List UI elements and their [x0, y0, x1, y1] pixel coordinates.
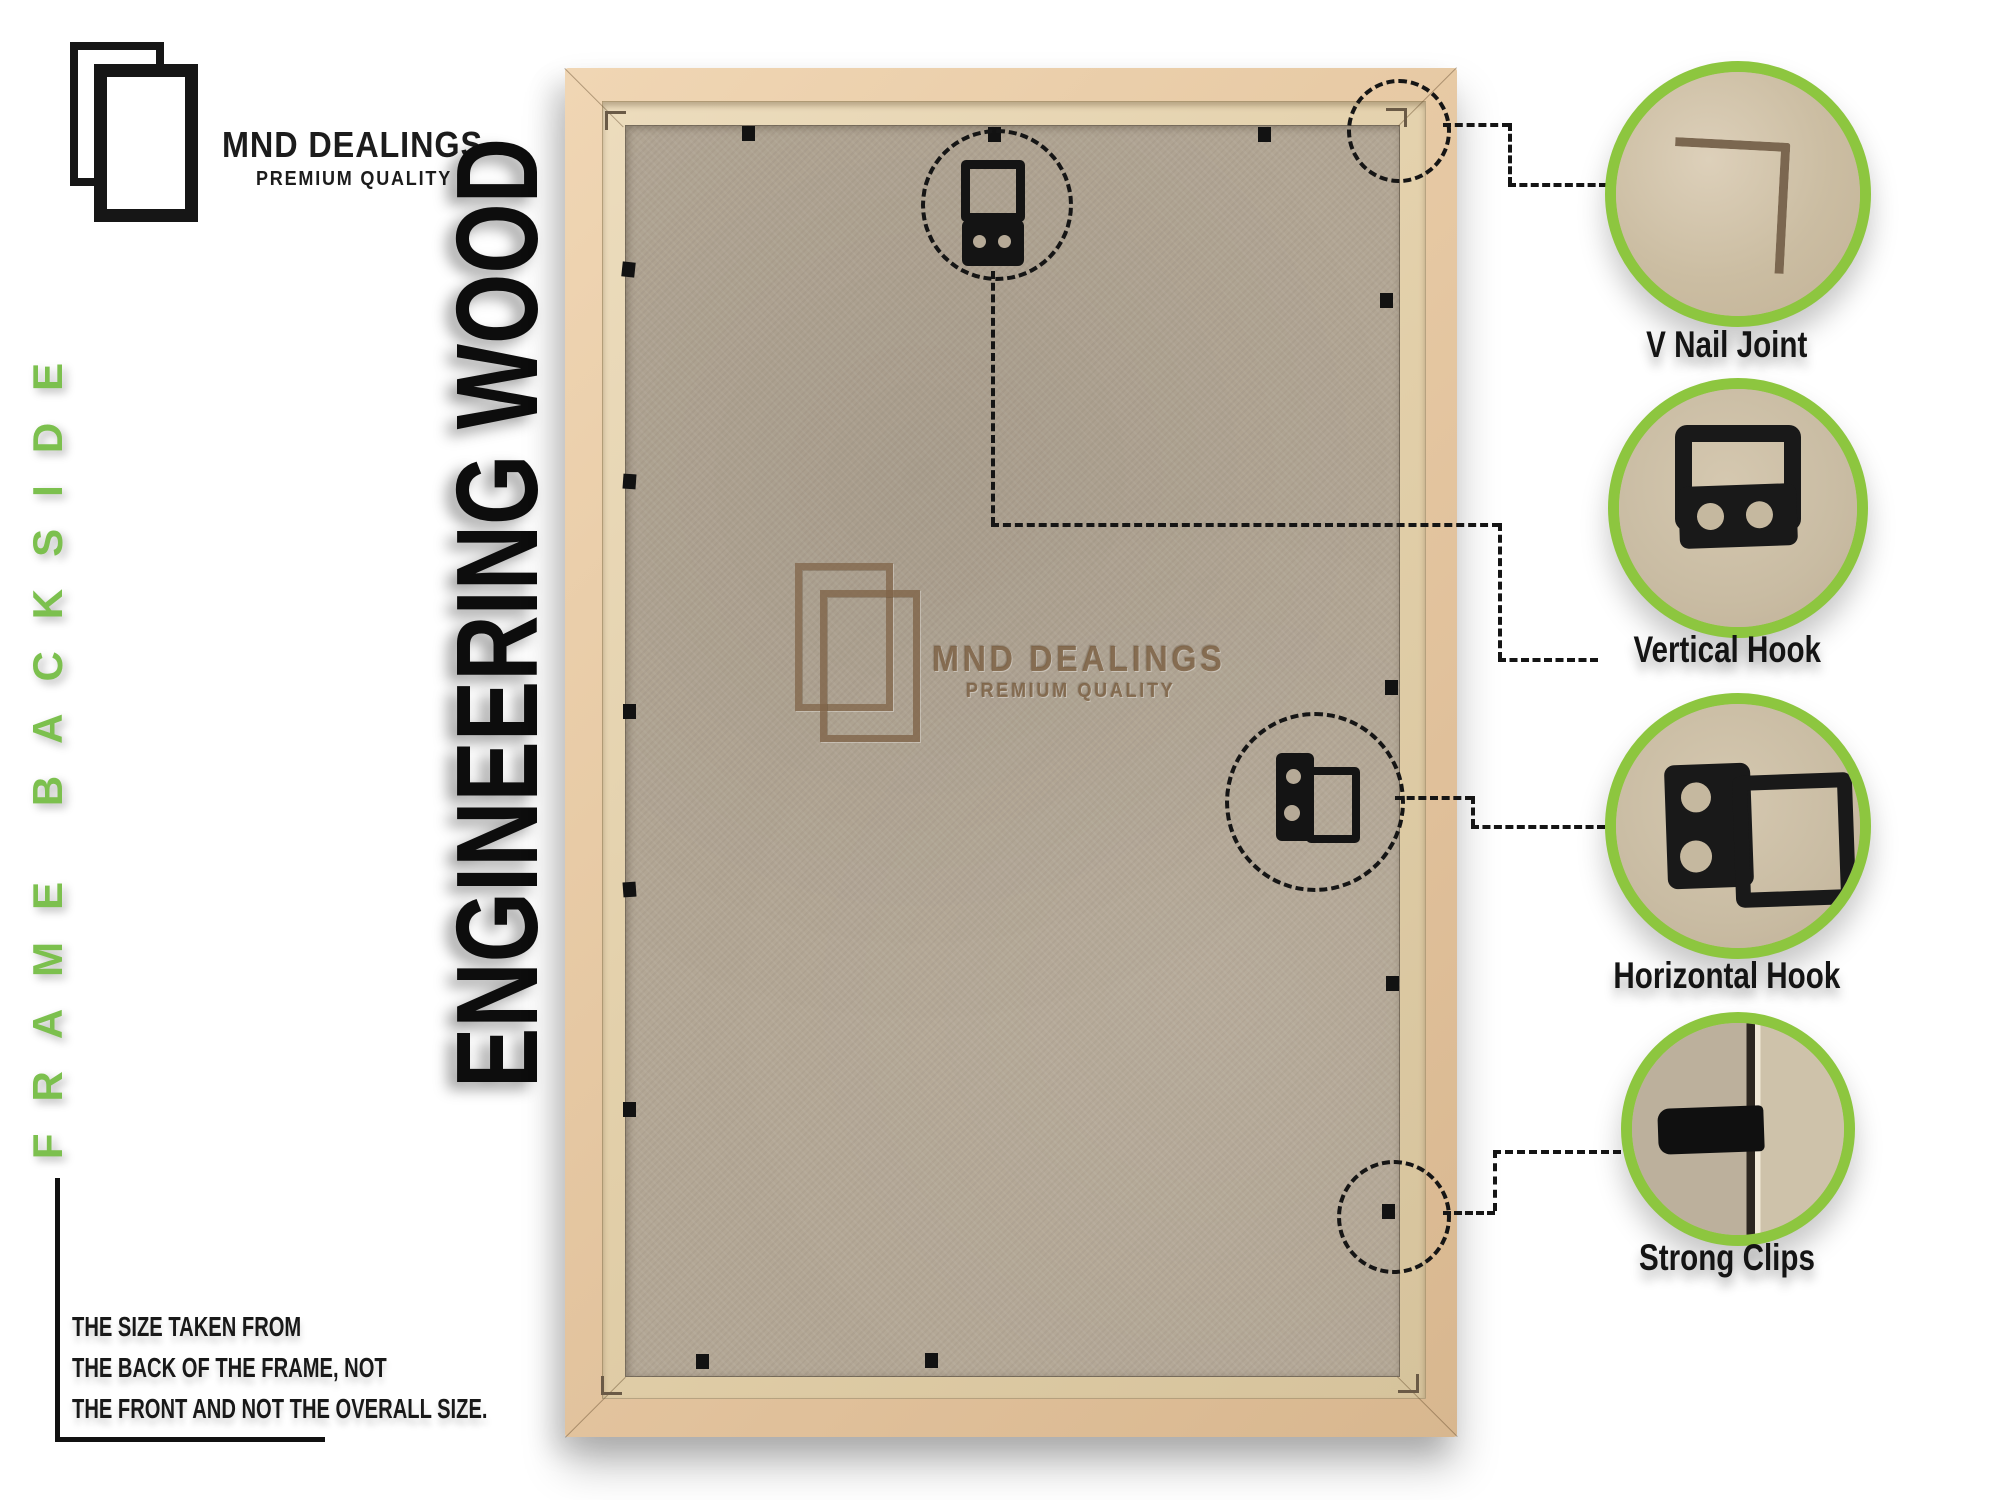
connector-strong-clips	[1493, 1150, 1497, 1211]
highlight-circle-horizontal-hook	[1225, 712, 1405, 892]
watermark-tagline: PREMIUM QUALITY	[966, 680, 1199, 703]
size-note-connector-horizontal	[55, 1437, 325, 1442]
v-groove-mark	[1669, 137, 1791, 274]
product-infographic: MND DEALINGS PREMIUM QUALITY FRAME BACKS…	[0, 0, 2000, 1500]
highlight-circle-corner-joint	[1347, 79, 1451, 183]
callout-photo-strong-clips	[1621, 1012, 1855, 1246]
callout-label-v-nail-joint: V Nail Joint	[1557, 324, 1897, 366]
corner-shadow	[1617, 252, 1677, 305]
connector-strong-clips	[1493, 1150, 1621, 1154]
connector-strong-clips	[1443, 1211, 1495, 1215]
connector-horizontal-hook	[1471, 825, 1605, 829]
connector-vertical-hook	[991, 523, 1500, 527]
size-note-connector-vertical	[55, 1178, 60, 1440]
size-note-line-1: THE SIZE TAKEN FROM	[72, 1311, 390, 1343]
clip	[623, 1102, 636, 1117]
watermark-name: MND DEALINGS	[932, 638, 1258, 680]
clip	[1386, 976, 1399, 991]
engineering-wood-label: ENGINEERING WOOD	[441, 198, 553, 1222]
callout-photo-horizontal-hook	[1605, 693, 1871, 959]
clip	[925, 1353, 938, 1368]
connector-horizontal-hook	[1395, 796, 1473, 800]
clip	[1380, 293, 1393, 308]
size-note-line-2: THE BACK OF THE FRAME, NOT	[72, 1352, 509, 1384]
clip	[622, 474, 636, 490]
callout-photo-vertical-hook	[1608, 378, 1868, 638]
hook-loop	[1732, 772, 1857, 908]
highlight-circle-vertical-hook	[921, 129, 1073, 281]
clip	[696, 1354, 709, 1369]
brand-logo-frame-front-icon	[94, 64, 198, 222]
frame-backside-label: FRAME BACKSIDE	[24, 315, 72, 1175]
clip	[621, 261, 635, 277]
connector-horizontal-hook	[1471, 796, 1475, 827]
clip	[1385, 680, 1398, 695]
connector-v-nail	[1443, 123, 1510, 127]
clip	[742, 126, 755, 141]
callout-label-horizontal-hook: Horizontal Hook	[1557, 955, 1897, 997]
clip	[623, 704, 636, 719]
connector-v-nail	[1508, 123, 1512, 185]
v-nail-mark-top-left	[605, 111, 626, 130]
size-note-line-3: THE FRONT AND NOT THE OVERALL SIZE.	[72, 1393, 649, 1425]
v-nail-mark-bottom-right	[1398, 1374, 1419, 1393]
watermark-logo-frame-front-icon	[820, 590, 920, 742]
callout-label-strong-clips: Strong Clips	[1557, 1237, 1897, 1279]
callout-label-vertical-hook: Vertical Hook	[1557, 629, 1897, 671]
connector-v-nail	[1508, 183, 1607, 187]
clip	[1258, 127, 1271, 142]
callout-photo-v-nail-joint	[1605, 61, 1871, 327]
clip-tab	[1657, 1105, 1765, 1155]
v-nail-mark-bottom-left	[601, 1376, 622, 1395]
hook-plate	[1678, 483, 1798, 549]
connector-vertical-hook	[991, 271, 995, 525]
clip	[622, 882, 636, 898]
connector-vertical-hook	[1498, 523, 1502, 660]
highlight-circle-clip	[1337, 1160, 1451, 1274]
